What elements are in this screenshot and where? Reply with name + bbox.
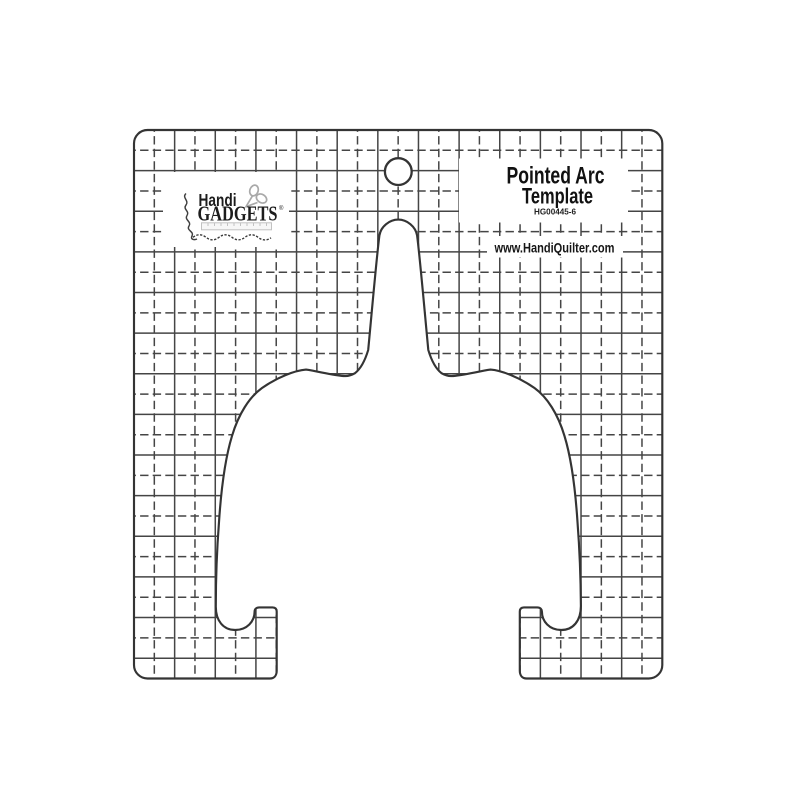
svg-text:Template: Template — [522, 183, 593, 208]
svg-text:GADGETS: GADGETS — [198, 202, 278, 226]
svg-text:HG00445-6: HG00445-6 — [534, 207, 577, 216]
svg-text:www.HandiQuilter.com: www.HandiQuilter.com — [494, 240, 615, 255]
svg-text:®: ® — [279, 205, 284, 212]
